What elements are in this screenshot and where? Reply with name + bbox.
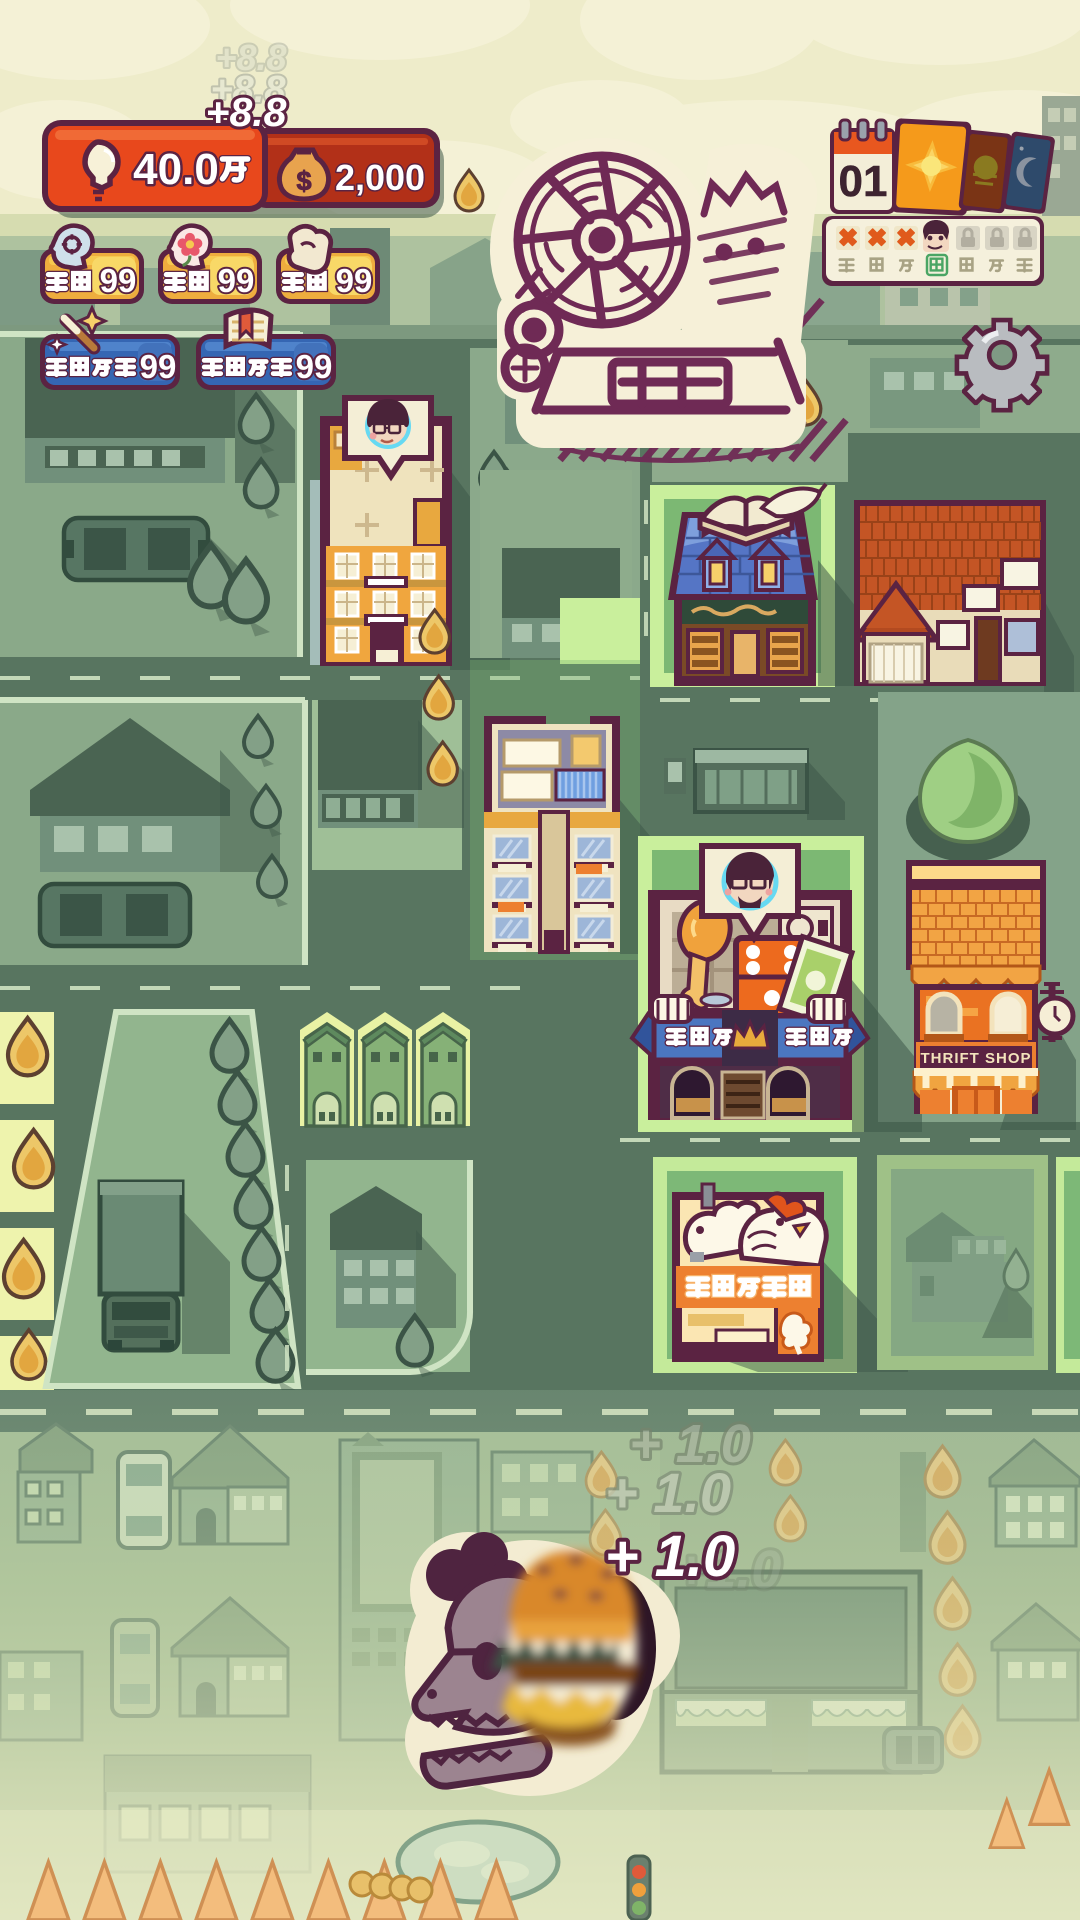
svg-text:✖: ✖ [838,225,858,252]
svg-text:2,000: 2,000 [335,157,425,198]
svg-text:✖: ✖ [896,225,916,252]
svg-text:99: 99 [100,262,137,299]
svg-text:+8.8: +8.8 [206,89,287,135]
svg-text:$: $ [296,166,311,196]
svg-text:99: 99 [336,262,373,299]
svg-text:99: 99 [218,262,255,299]
svg-text:40.0: 40.0 [133,145,219,194]
svg-text:+ 1.0: + 1.0 [605,1461,731,1524]
svg-text:✖: ✖ [867,225,887,252]
svg-text:99: 99 [140,348,177,385]
svg-text:99: 99 [296,348,333,385]
svg-text:01: 01 [839,157,888,206]
svg-text:THRIFT SHOP: THRIFT SHOP [921,1050,1032,1067]
svg-text:+ 1.0: + 1.0 [605,1524,736,1589]
